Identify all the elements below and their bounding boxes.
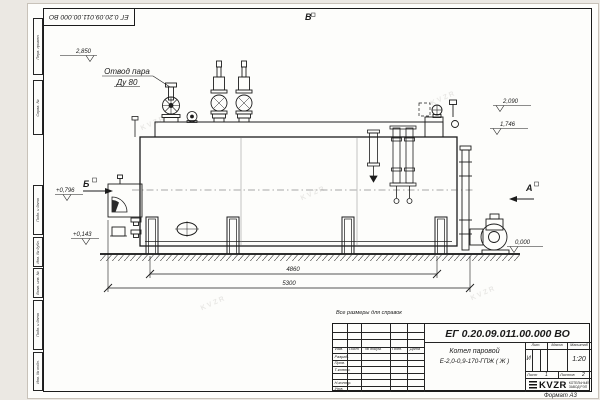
col-doc: № докум. [365, 348, 382, 352]
elev-2850: 2,850 [75, 49, 92, 55]
row-razrab: Разраб. [335, 355, 349, 359]
elev-0796: +0,796 [56, 188, 75, 194]
massa-label: Масса [547, 344, 567, 348]
dim-5300: 5300 [282, 281, 296, 287]
view-b-sheet-ref [312, 13, 316, 17]
lit-value: И [525, 356, 532, 362]
elev-1746: 1,746 [500, 122, 516, 128]
col-data: Дата [410, 348, 420, 352]
water-level-gauge-1 [368, 130, 380, 182]
listov-label: Листов [560, 373, 575, 377]
scale-value: 1:20 [567, 356, 591, 363]
view-label-a: А [525, 183, 533, 193]
lit-label: Лит. [525, 344, 547, 348]
drawing-sheet-page: { "sheet": { "stamp_top": "ЕГ 0.20.09.01… [0, 0, 600, 400]
doc-number: ЕГ 0.20.09.011.00.000 ВО [424, 329, 591, 340]
view-label-b: Б [83, 179, 90, 189]
logo-text: KVZR [539, 380, 567, 391]
safety-valve-1 [211, 61, 227, 122]
row-tkontr: Т.контр. [335, 368, 351, 372]
product-name-line1: Котел паровой [424, 348, 525, 355]
listov-value: 2 [582, 373, 585, 378]
title-block: Изм. Лист № докум. Подп. Дата Разраб. Пр… [332, 323, 590, 391]
product-name-line2: Е-2,0-0,9-170-ГПЖ ( Ж ) [424, 359, 525, 365]
row-nkontr: Н.контр. [335, 381, 352, 385]
view-label-v: В [305, 12, 312, 22]
pump-symbol [187, 112, 197, 123]
kvzr-logo: KVZR КОТЕЛЬНЫЙ ЗАВОД РЭП [529, 380, 589, 391]
reference-note: Все размеры для справок [336, 311, 402, 317]
burner-fan-unit [470, 214, 509, 254]
scale-label: Масштаб [567, 344, 591, 348]
front-door-box [108, 175, 142, 238]
col-podp: Подп. [392, 348, 402, 352]
ground-line [100, 254, 520, 261]
boiler-shell [132, 137, 473, 246]
logo-bars-icon [529, 381, 537, 390]
manhole [175, 221, 199, 237]
label-steam-outlet: Отвод пара [104, 67, 150, 76]
format-label: Формат А3 [544, 393, 577, 399]
safety-valve-2 [236, 61, 252, 122]
row-utv: Утв. [335, 387, 344, 391]
view-arrow-a [509, 182, 539, 202]
rear-header-box [419, 100, 459, 137]
elev-0000: 0,000 [515, 240, 531, 246]
dim-4860: 4860 [286, 267, 300, 273]
elev-2090: 2,090 [502, 99, 519, 105]
logo-sub2: ЗАВОД РЭП [569, 386, 589, 390]
steam-outlet-valve [162, 83, 180, 122]
list-value: 1 [545, 373, 548, 378]
col-list: Лист [349, 348, 359, 352]
elev-0143: +0,143 [73, 232, 92, 238]
logo-subtext: КОТЕЛЬНЫЙ ЗАВОД РЭП [569, 382, 589, 389]
vent-pin [132, 117, 138, 138]
label-steam-dn80: Ду 80 [116, 78, 138, 87]
row-prov: Пров. [335, 361, 346, 365]
col-izm: Изм. [335, 348, 343, 352]
list-label: Лист [527, 373, 537, 377]
